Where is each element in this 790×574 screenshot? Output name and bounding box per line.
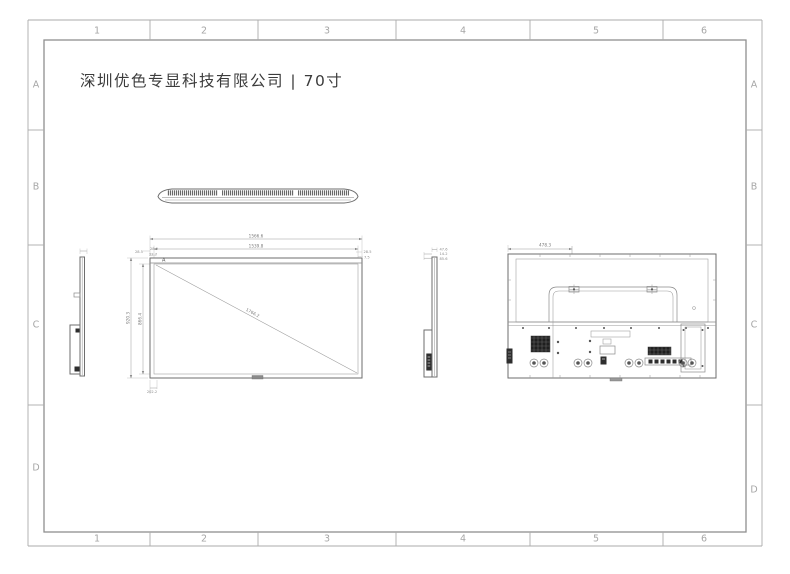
dim-side-c: 85.6 [440,257,449,261]
corner-marker-a: A [162,258,166,264]
view-front: 1566.6 1539.8 920.3 866.4 1766.2 202.2 2… [126,234,372,395]
dim-back-offset-top: 478.3 [539,243,551,248]
dim-front-top-left-a: 28.5 [135,250,143,254]
view-back: 478.3 252.6 600 358 [507,243,716,382]
grid-col-top-1: 1 [94,26,100,37]
dim-front-height-outer: 920.3 [126,312,131,324]
power-switch [601,357,606,364]
grid-row-left-c: C [33,320,40,331]
dim-front-top-right-b: 7.5 [364,256,370,260]
dim-front-width-outer: 1566.6 [249,234,264,239]
vent-grille-left [531,336,550,352]
grid-col-top-3: 3 [324,26,330,37]
grid-col-bottom-2: 2 [201,534,207,545]
grid-col-bottom-1: 1 [94,534,100,545]
drawing-sheet: 1 2 3 4 5 6 1 2 3 4 5 6 A B C D A B C D … [0,0,790,574]
grid-row-left-b: B [33,182,40,193]
grid-row-right-a: A [751,80,758,91]
grid-row-right-c: C [751,320,758,331]
grid-col-bottom-3: 3 [324,534,330,545]
grid-col-bottom-4: 4 [460,534,466,545]
grid-row-right-b: B [751,182,758,193]
grid-col-top-5: 5 [593,26,599,37]
vent-grille-right [648,347,671,355]
grid-col-top-6: 6 [701,26,707,37]
dim-front-top-left-c: 22.7 [149,253,157,257]
port-block [427,354,431,370]
side-connector [507,349,512,363]
dim-front-width-active: 1539.8 [249,244,264,249]
view-side-right: 47.6 14.2 85.6 [424,248,448,378]
dim-front-bottom-offset: 202.2 [147,390,157,394]
grid-col-top-4: 4 [460,26,466,37]
dim-front-top-right-a: 28.5 [364,250,372,254]
grid-col-bottom-5: 5 [593,534,599,545]
speaker-grille-strip [167,190,349,195]
grid-row-right-d: D [750,485,757,496]
view-top [158,189,358,203]
dim-side-a: 47.6 [440,248,449,252]
dim-side-b: 14.2 [440,252,448,256]
back-bottom-tab [610,378,622,381]
logo-bar [252,376,263,380]
grid-col-top-2: 2 [201,26,207,37]
dim-front-top-left-b: 28.9 [150,247,159,251]
drawing-canvas: 1 2 3 4 5 6 1 2 3 4 5 6 A B C D A B C D … [0,0,790,574]
grid-row-left-d: D [32,463,39,474]
sheet-title: 深圳优色专显科技有限公司 | 70寸 [80,72,343,90]
grid-col-bottom-6: 6 [701,534,707,545]
grid-row-left-a: A [33,80,40,91]
view-side-left [70,249,87,377]
dim-front-height-active: 866.4 [138,313,143,325]
